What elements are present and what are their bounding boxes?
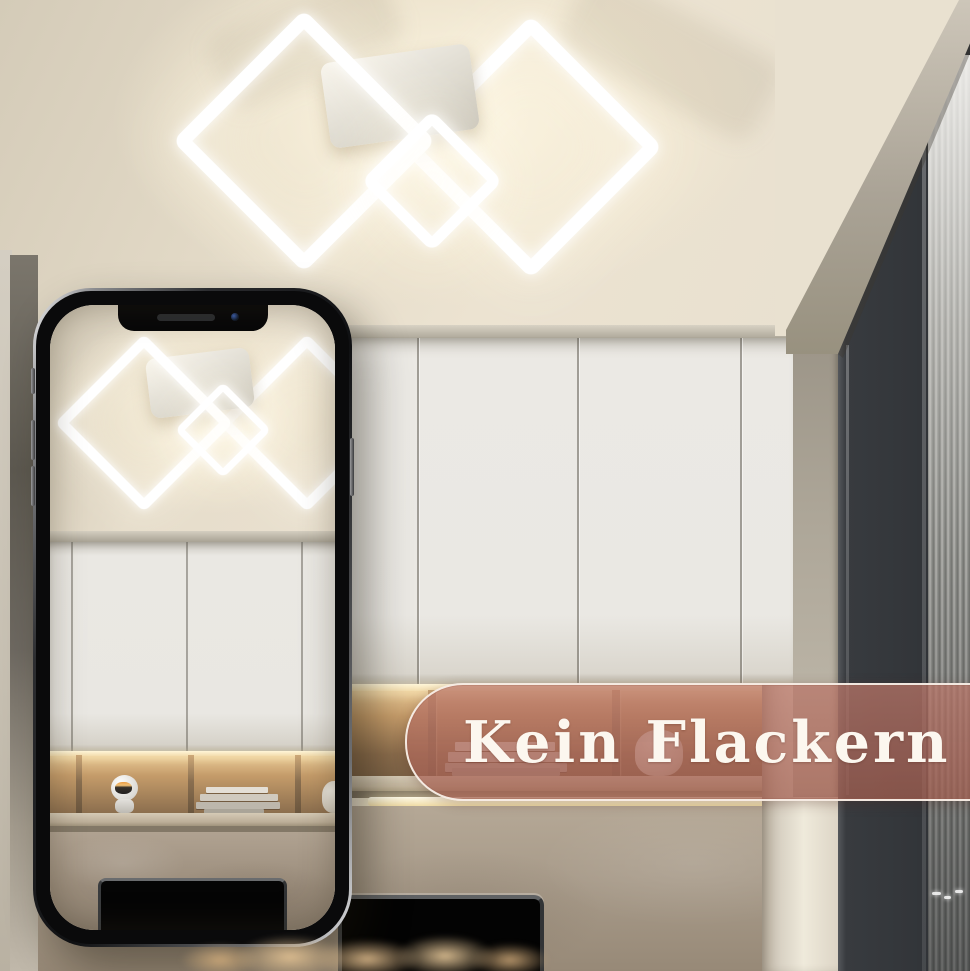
astronaut-body [115,799,134,813]
smartphone-mockup [33,288,352,947]
phone-open-shelf [50,751,335,832]
phone-shelf-divider [188,755,194,813]
phone-vase [322,781,335,813]
phone-shelf-divider [295,755,301,813]
kein-flackern-banner: Kein Flackern [405,683,970,801]
phone-shelf-ledge [50,813,335,826]
speaker-grille-icon [157,314,215,321]
phone-cabinets [50,542,335,751]
grass-tuft [470,943,550,971]
astronaut-figurine [110,775,140,815]
product-photo: Kein Flackern [0,0,970,971]
banner-text: Kein Flackern [407,709,951,776]
phone-screen [50,305,335,930]
pampas-grass [180,935,550,971]
volume-up-button [31,420,35,460]
phone-book-spine [200,794,278,801]
glass-sparkle [944,896,951,899]
phone-shelf-divider [76,755,82,813]
phone-cabinet-seam [186,542,188,751]
phone-cabinet-trim [50,531,335,542]
phone-bezel [36,291,349,944]
phone-notch [118,305,268,331]
mute-switch [31,368,35,394]
power-button [350,438,354,496]
phone-book-spine [196,802,280,809]
glass-sparkle [932,892,941,895]
astronaut-visor [115,782,132,794]
phone-cabinet-seam [301,542,303,751]
phone-book-spine [206,787,268,793]
front-camera-icon [231,313,239,321]
phone-cabinet-seam [71,542,73,751]
volume-down-button [31,466,35,506]
phone-tv-screen [98,878,287,930]
glass-sparkle [955,890,963,893]
